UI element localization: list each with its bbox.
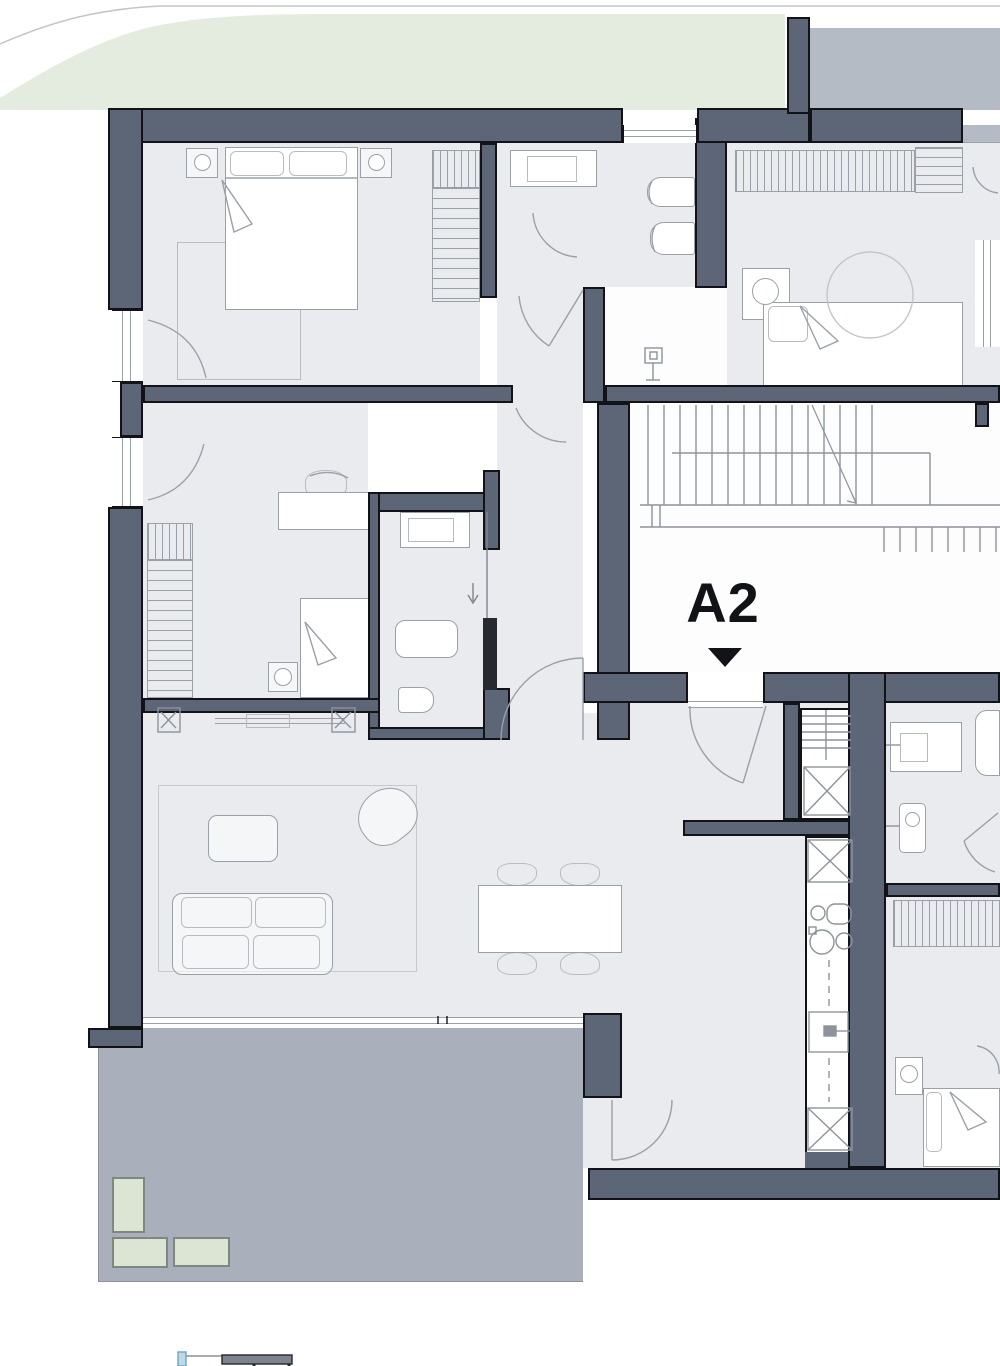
shelf-unit-icon [915,147,963,193]
sofa-seat-cushion [253,935,320,969]
wardrobe-icon [893,900,1000,947]
planter-box-icon [173,1237,230,1267]
single-bed-icon [300,598,378,698]
window-icon [143,1017,583,1024]
sofa-back-cushion [181,897,252,928]
entrance-marker-icon [708,648,742,667]
lamp-icon [368,154,385,171]
hall-closet [800,708,853,820]
unit-label: A2 [668,570,778,635]
wall [583,287,605,403]
toilet-icon [899,803,926,853]
wall [783,703,800,820]
coffee-table-icon [208,815,278,862]
pillow-icon [768,306,808,342]
dining-chair-icon [497,952,537,975]
exterior-wall [810,108,963,143]
wall [480,143,497,298]
exterior-wall-foot [88,1028,143,1048]
window-icon [975,240,1000,347]
wall [483,470,500,550]
sink-icon [900,733,928,762]
sofa-seat-cushion [182,935,249,969]
terrace [98,1028,583,1282]
terrace-opening [963,125,1000,143]
wall [695,118,727,288]
bathtub-icon [395,620,458,658]
sliding-door-icon [483,618,497,690]
floor-plan-canvas: A2 [0,0,1000,1366]
planter-box-icon [112,1237,168,1268]
window-icon [112,310,143,382]
cutoff-fragment [178,1352,292,1366]
bidet-icon [650,222,695,255]
exterior-wall [108,108,623,143]
wardrobe-icon [147,523,193,560]
planter-box-icon [112,1177,145,1233]
corridor-floor [497,287,583,740]
entry-door-threshold [688,701,763,708]
wall [483,688,510,740]
washer-drum-icon [752,278,779,305]
dining-chair-icon [497,863,537,886]
neighbor-terrace-band [810,28,1000,110]
sink-basin [527,156,577,182]
wall [975,403,989,427]
toilet-icon [647,177,695,207]
pillow-icon [230,151,284,176]
wall [588,1168,1000,1200]
stairwell-floor [605,403,1000,672]
wardrobe-icon [735,150,915,192]
exterior-wall [108,507,143,1028]
pillow-icon [289,151,347,176]
wall [368,492,497,512]
lamp-icon [194,154,211,171]
shower-icon [975,710,1000,776]
wardrobe-icon [432,150,480,188]
exterior-wall-stub [787,17,810,114]
dining-chair-icon [560,863,600,886]
wall [583,672,688,703]
sideboard-icon [246,714,290,728]
wall [848,672,886,1168]
washer-drum-icon [900,1065,918,1083]
wardrobe-icon [432,188,480,302]
window-icon [112,437,143,507]
sink-basin [408,518,454,542]
desk-icon [278,492,377,530]
exterior-wall-pier [120,382,143,437]
speaker-cone-icon [274,668,292,686]
dining-chair-icon [560,952,600,975]
sofa-back-cushion [255,897,326,928]
pillow-icon [926,1092,942,1152]
toilet-icon [398,687,434,713]
dining-table-icon [478,885,622,953]
wall [683,820,853,836]
wall-pier [583,1013,622,1098]
toilet-flush-icon [905,812,920,827]
wall [605,385,1000,403]
wardrobe-icon [147,560,193,698]
window-icon [623,125,697,143]
exterior-wall [108,108,143,310]
wall [143,385,513,403]
wall [143,698,380,713]
wall [886,883,1000,897]
